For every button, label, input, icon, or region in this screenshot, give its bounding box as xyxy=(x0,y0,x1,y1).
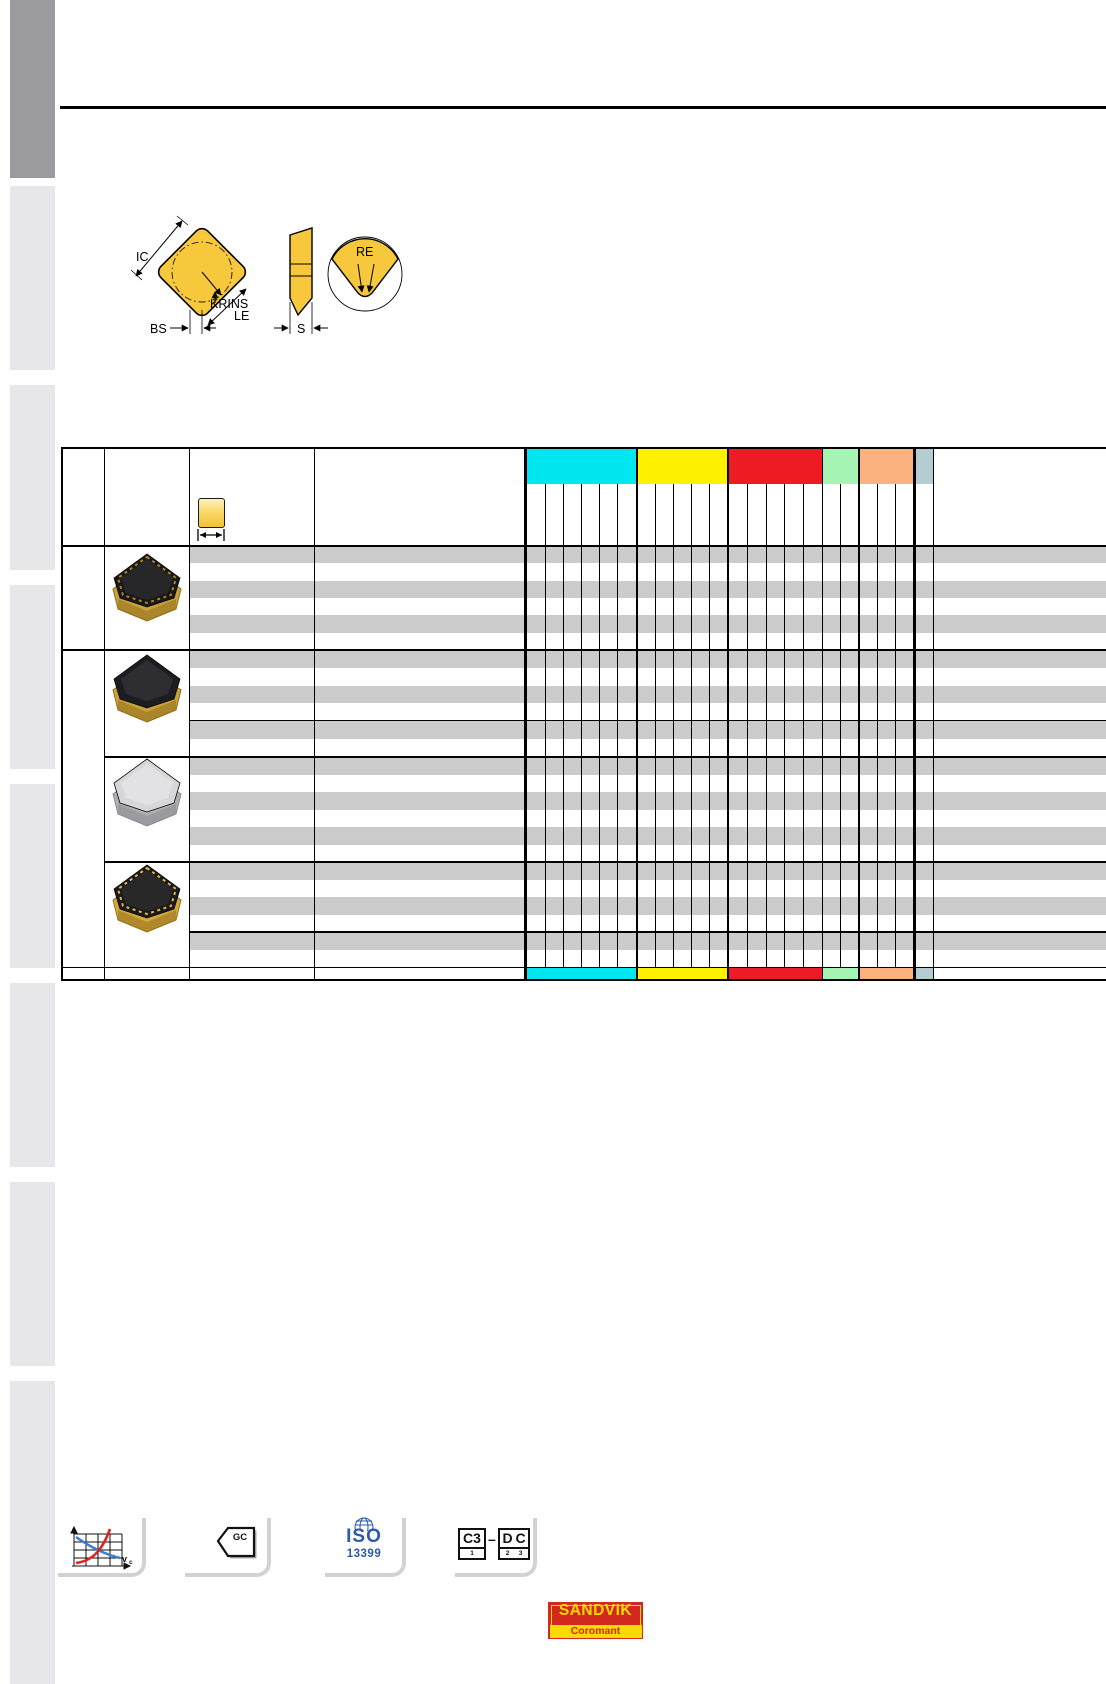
insert-corner-detail: RE xyxy=(328,237,402,311)
logo-sandvik-text: SANDVIK xyxy=(548,1602,643,1619)
code-sub-3: 3 xyxy=(513,1547,528,1558)
grid-vline xyxy=(636,447,638,981)
svg-text:v: v xyxy=(122,1554,127,1564)
grid-vline xyxy=(859,447,860,979)
grade-band-top-cyan-band xyxy=(527,449,636,484)
grid-vline xyxy=(822,447,823,979)
grid-hline xyxy=(104,861,1106,863)
grid-hline xyxy=(61,979,1106,982)
grid-vline xyxy=(524,447,527,981)
stripe-row xyxy=(190,827,1106,845)
stripe-row xyxy=(190,721,1106,739)
insert-photo-black-gold-textured xyxy=(107,862,187,938)
label-bs: BS xyxy=(150,322,167,336)
insert-photo-black-smooth-gold-rim xyxy=(107,652,187,728)
grid-vline xyxy=(673,484,674,967)
catalog-page: { "page_type": "tooling-catalog-insert-d… xyxy=(0,0,1106,1684)
grid-hline xyxy=(104,756,1106,758)
grade-band-top-red-band xyxy=(729,449,822,484)
grid-vline xyxy=(914,447,917,981)
cutting-data-graph-icon: v c xyxy=(66,1521,138,1571)
grade-band-top-bluegray-band xyxy=(916,449,933,484)
stripe-row xyxy=(190,792,1106,810)
sidebar-tab-dark xyxy=(10,0,55,178)
grid-vline xyxy=(563,484,564,967)
iso-number: 13399 xyxy=(334,1548,394,1560)
grade-band-bottom-yellow-band xyxy=(638,968,727,979)
stripe-row xyxy=(190,581,1106,598)
grid-vline xyxy=(691,484,692,967)
grid-hline xyxy=(61,967,1106,969)
stripe-row xyxy=(190,546,1106,563)
grid-vline xyxy=(766,484,767,967)
sidebar-tab xyxy=(10,1381,55,1684)
grade-band-bottom-green-band xyxy=(823,968,858,979)
grid-vline xyxy=(655,484,656,967)
grade-band-top-orange-band xyxy=(860,449,913,484)
grid-hline xyxy=(61,545,1106,547)
grid-hline xyxy=(190,720,1106,722)
grid-vline xyxy=(895,484,896,967)
stripe-row xyxy=(190,757,1106,775)
grade-band-bottom-red-band xyxy=(729,968,822,979)
grid-vline xyxy=(617,484,618,967)
stripe-row xyxy=(190,615,1106,632)
grid-vline xyxy=(189,447,191,981)
grid-vline xyxy=(784,484,785,967)
sidebar-tab xyxy=(10,1182,55,1366)
grade-band-bottom-cyan-band xyxy=(527,968,636,979)
grid-vline xyxy=(599,484,600,967)
gc-label: GC xyxy=(224,1532,256,1543)
grid-vline xyxy=(581,484,582,967)
code-dash: – xyxy=(488,1531,496,1547)
insert-top-view: IC BS KRINS LE xyxy=(131,216,249,336)
code-box-c3: C3 xyxy=(460,1530,484,1547)
stripe-row xyxy=(190,932,1106,950)
grid-vline xyxy=(747,484,748,967)
insert-photo-silver-uncoated xyxy=(107,756,187,832)
logo-coromant-text: Coromant xyxy=(550,1625,642,1638)
sidebar-tab xyxy=(10,385,55,570)
code-sub-1: 1 xyxy=(460,1547,484,1558)
grid-hline xyxy=(61,447,1106,449)
grid-hline xyxy=(190,931,1106,933)
label-le: LE xyxy=(234,309,249,323)
grade-band-bottom-orange-band xyxy=(860,968,913,979)
code-box-c: C xyxy=(513,1530,528,1547)
label-s: S xyxy=(297,322,305,336)
grid-vline xyxy=(314,447,315,981)
label-re: RE xyxy=(356,245,373,259)
svg-text:c: c xyxy=(129,1559,133,1566)
grid-vline xyxy=(933,447,934,979)
sandvik-coromant-logo: SANDVIK Coromant xyxy=(548,1602,643,1639)
insert-size-square-icon xyxy=(198,498,225,528)
grid-vline xyxy=(545,484,546,967)
grade-band-bottom-bluegray-band xyxy=(916,968,933,979)
grade-band-top-green-band xyxy=(823,449,858,484)
grid-vline xyxy=(61,447,63,981)
label-ic: IC xyxy=(136,250,149,264)
grid-vline xyxy=(728,447,729,979)
width-dimension-arrow-icon xyxy=(196,528,226,542)
stripe-row xyxy=(190,862,1106,880)
grid-vline xyxy=(709,484,710,967)
sidebar-tab xyxy=(10,186,55,370)
gc-grade-icon: GC xyxy=(212,1522,258,1562)
stripe-row xyxy=(190,650,1106,668)
insert-dimension-diagram: IC BS KRINS LE S RE xyxy=(122,212,422,352)
stripe-row xyxy=(190,686,1106,704)
stripe-row xyxy=(190,897,1106,915)
grid-vline xyxy=(104,447,106,981)
ordering-code-icon: C3 1 – D 2 C 3 xyxy=(458,1528,530,1560)
grid-hline xyxy=(61,649,1106,651)
grid-vline xyxy=(840,484,841,967)
sidebar-tab xyxy=(10,983,55,1167)
iso-text: ISO xyxy=(334,1529,394,1545)
insert-side-view: S xyxy=(274,228,328,336)
insert-size-symbol xyxy=(196,497,226,543)
grid-vline xyxy=(877,484,878,967)
sidebar-tab xyxy=(10,585,55,769)
grid-vline xyxy=(803,484,804,967)
grade-band-top-yellow-band xyxy=(638,449,727,484)
sidebar-tab xyxy=(10,784,55,968)
header-rule xyxy=(60,106,1106,109)
iso-13399-logo: ISO 13399 xyxy=(334,1516,394,1560)
insert-photo-black-textured-gold-rim xyxy=(107,551,187,627)
